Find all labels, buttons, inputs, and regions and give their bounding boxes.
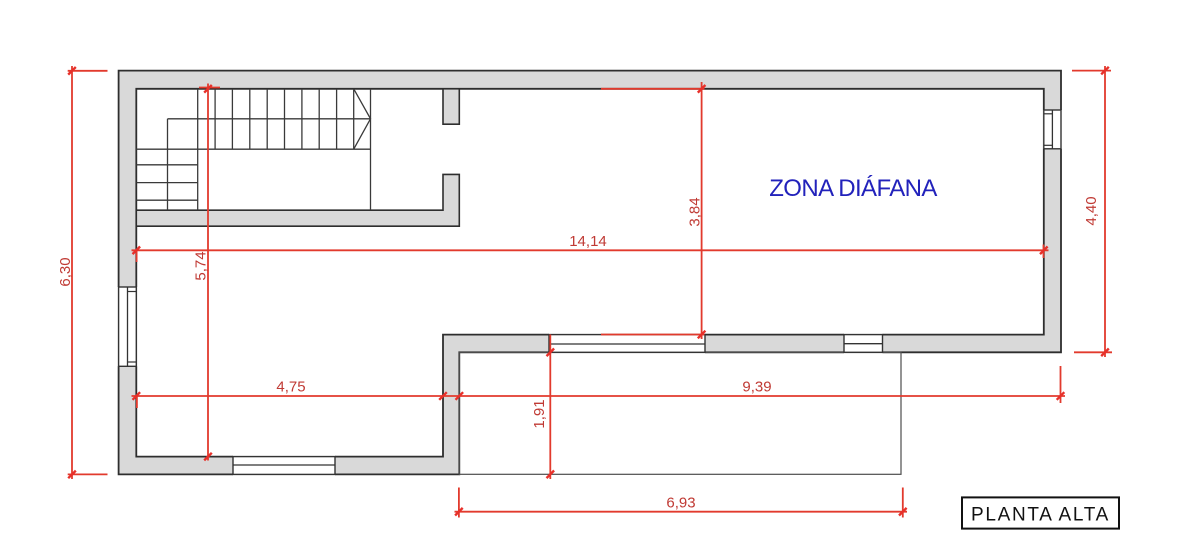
svg-text:ZONA DIÁFANA: ZONA DIÁFANA <box>769 175 937 202</box>
svg-text:6,30: 6,30 <box>57 257 74 286</box>
svg-text:9,39: 9,39 <box>742 379 771 396</box>
svg-text:6,93: 6,93 <box>666 495 695 512</box>
svg-text:1,91: 1,91 <box>531 399 548 428</box>
svg-text:4,40: 4,40 <box>1083 196 1100 225</box>
svg-text:PLANTA ALTA: PLANTA ALTA <box>971 505 1110 526</box>
svg-text:3,84: 3,84 <box>687 197 704 226</box>
svg-text:4,75: 4,75 <box>276 379 305 396</box>
svg-text:14,14: 14,14 <box>569 233 607 250</box>
svg-text:5,74: 5,74 <box>193 251 210 280</box>
